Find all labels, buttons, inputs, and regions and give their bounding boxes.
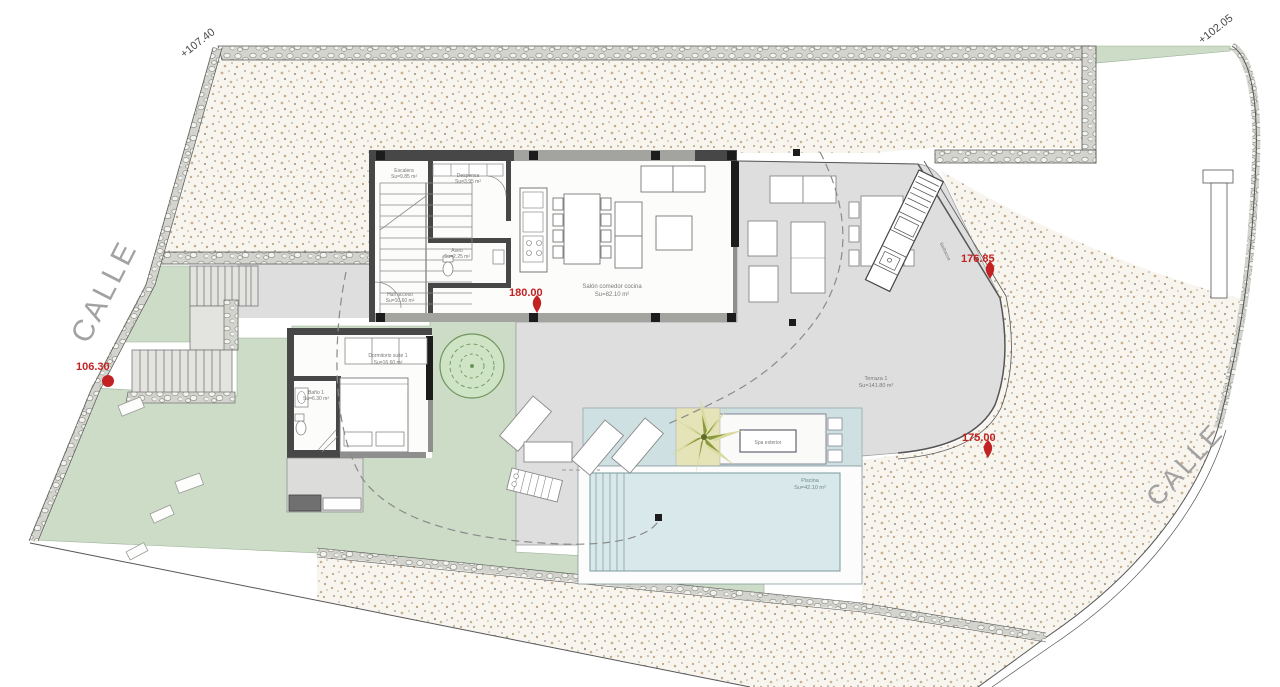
planter-box <box>289 495 321 511</box>
armchair-2 <box>749 266 778 302</box>
label-bano-area: Su=6.30 m² <box>303 396 329 402</box>
outdoor-sofa-right <box>803 176 836 203</box>
label-spa: Spa exterior <box>755 440 782 446</box>
label-salon-area: Su=82.10 m² <box>595 292 630 298</box>
upper-right-vertical-wall <box>1082 46 1096 163</box>
side-table <box>524 442 572 462</box>
stair-side-wall <box>224 300 238 350</box>
spot-level-106: 106.30 <box>76 361 110 373</box>
label-salon-name: Salón comedor cocina <box>582 284 642 290</box>
level-label-top-right: +102.05 <box>1196 12 1235 46</box>
east-glass-wall <box>731 161 739 247</box>
label-dormitorio-name: Dormitorio suite 1 <box>368 353 407 359</box>
label-piscina-name: Piscina <box>801 478 820 484</box>
label-hall-area: Su=10.60 m² <box>386 298 415 304</box>
garden-top-right-strip <box>1096 46 1230 63</box>
main-building <box>369 150 739 322</box>
kitchen-island <box>520 188 547 272</box>
label-dormitorio-area: Su=16.60 m² <box>374 360 403 366</box>
coffee-table <box>656 216 692 250</box>
east-wall-lower <box>733 247 737 313</box>
label-escalera-area: Su=9.85 m² <box>391 174 417 180</box>
wing-east-wall-lower <box>428 400 433 452</box>
top-boundary-wall <box>218 46 1090 60</box>
label-despensa-area: Su=3.95 m² <box>455 179 481 185</box>
south-wall <box>369 313 737 322</box>
courtyard-tree <box>440 334 504 398</box>
site-plan: CALLE CALLE +107.40 +102.05 Escalera Su=… <box>0 0 1280 687</box>
bench <box>323 498 361 510</box>
west-wall <box>369 150 375 322</box>
wing-west-wall <box>287 328 294 458</box>
north-wall-dark-left <box>369 150 514 161</box>
label-piscina-area: Su=42.10 m² <box>794 485 826 491</box>
bath-partition-h <box>292 376 340 381</box>
wing-terrace <box>287 458 363 512</box>
street-ramp-body <box>1211 183 1227 298</box>
armchair-1 <box>748 221 777 256</box>
outdoor-lounger <box>791 222 825 293</box>
street-ramp-top <box>1203 170 1233 183</box>
lower-flight <box>132 350 232 394</box>
spot-level-106-dot <box>102 375 114 387</box>
spot-level-175: 175.00 <box>962 432 996 444</box>
label-terraza-name: Terraza 1 <box>865 376 888 382</box>
bedroom-south-glass <box>340 452 426 458</box>
label-terraza-area: Su=141.80 m² <box>859 383 894 389</box>
left-retaining-wall <box>160 252 372 264</box>
label-aseo-area: Su=2.25 m² <box>444 254 470 260</box>
upper-right-bottom-wall <box>935 150 1096 163</box>
bed <box>340 378 408 452</box>
spa-steps <box>828 418 842 462</box>
outdoor-sofa-left <box>770 176 803 203</box>
wing-north-wall <box>287 328 432 335</box>
